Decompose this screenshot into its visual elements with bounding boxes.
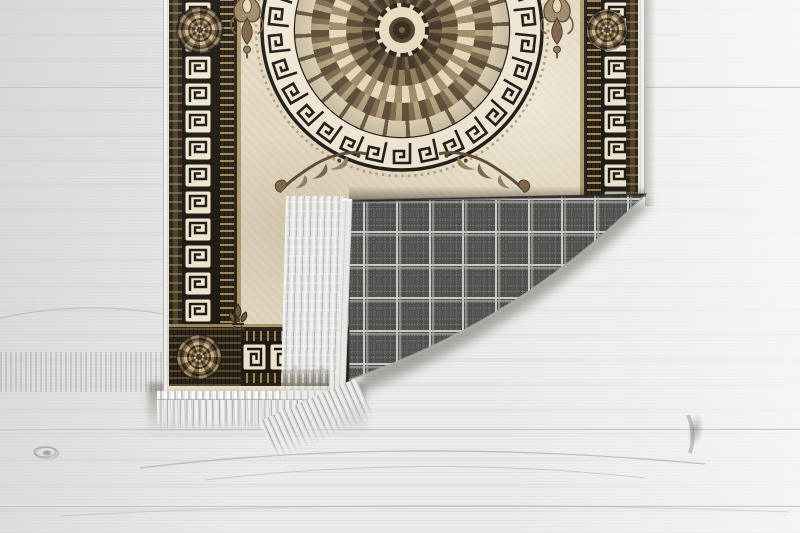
folded-edge-fringe xyxy=(280,196,343,410)
rug-edge-shadow xyxy=(645,0,656,206)
rug-product-photo xyxy=(0,0,800,533)
